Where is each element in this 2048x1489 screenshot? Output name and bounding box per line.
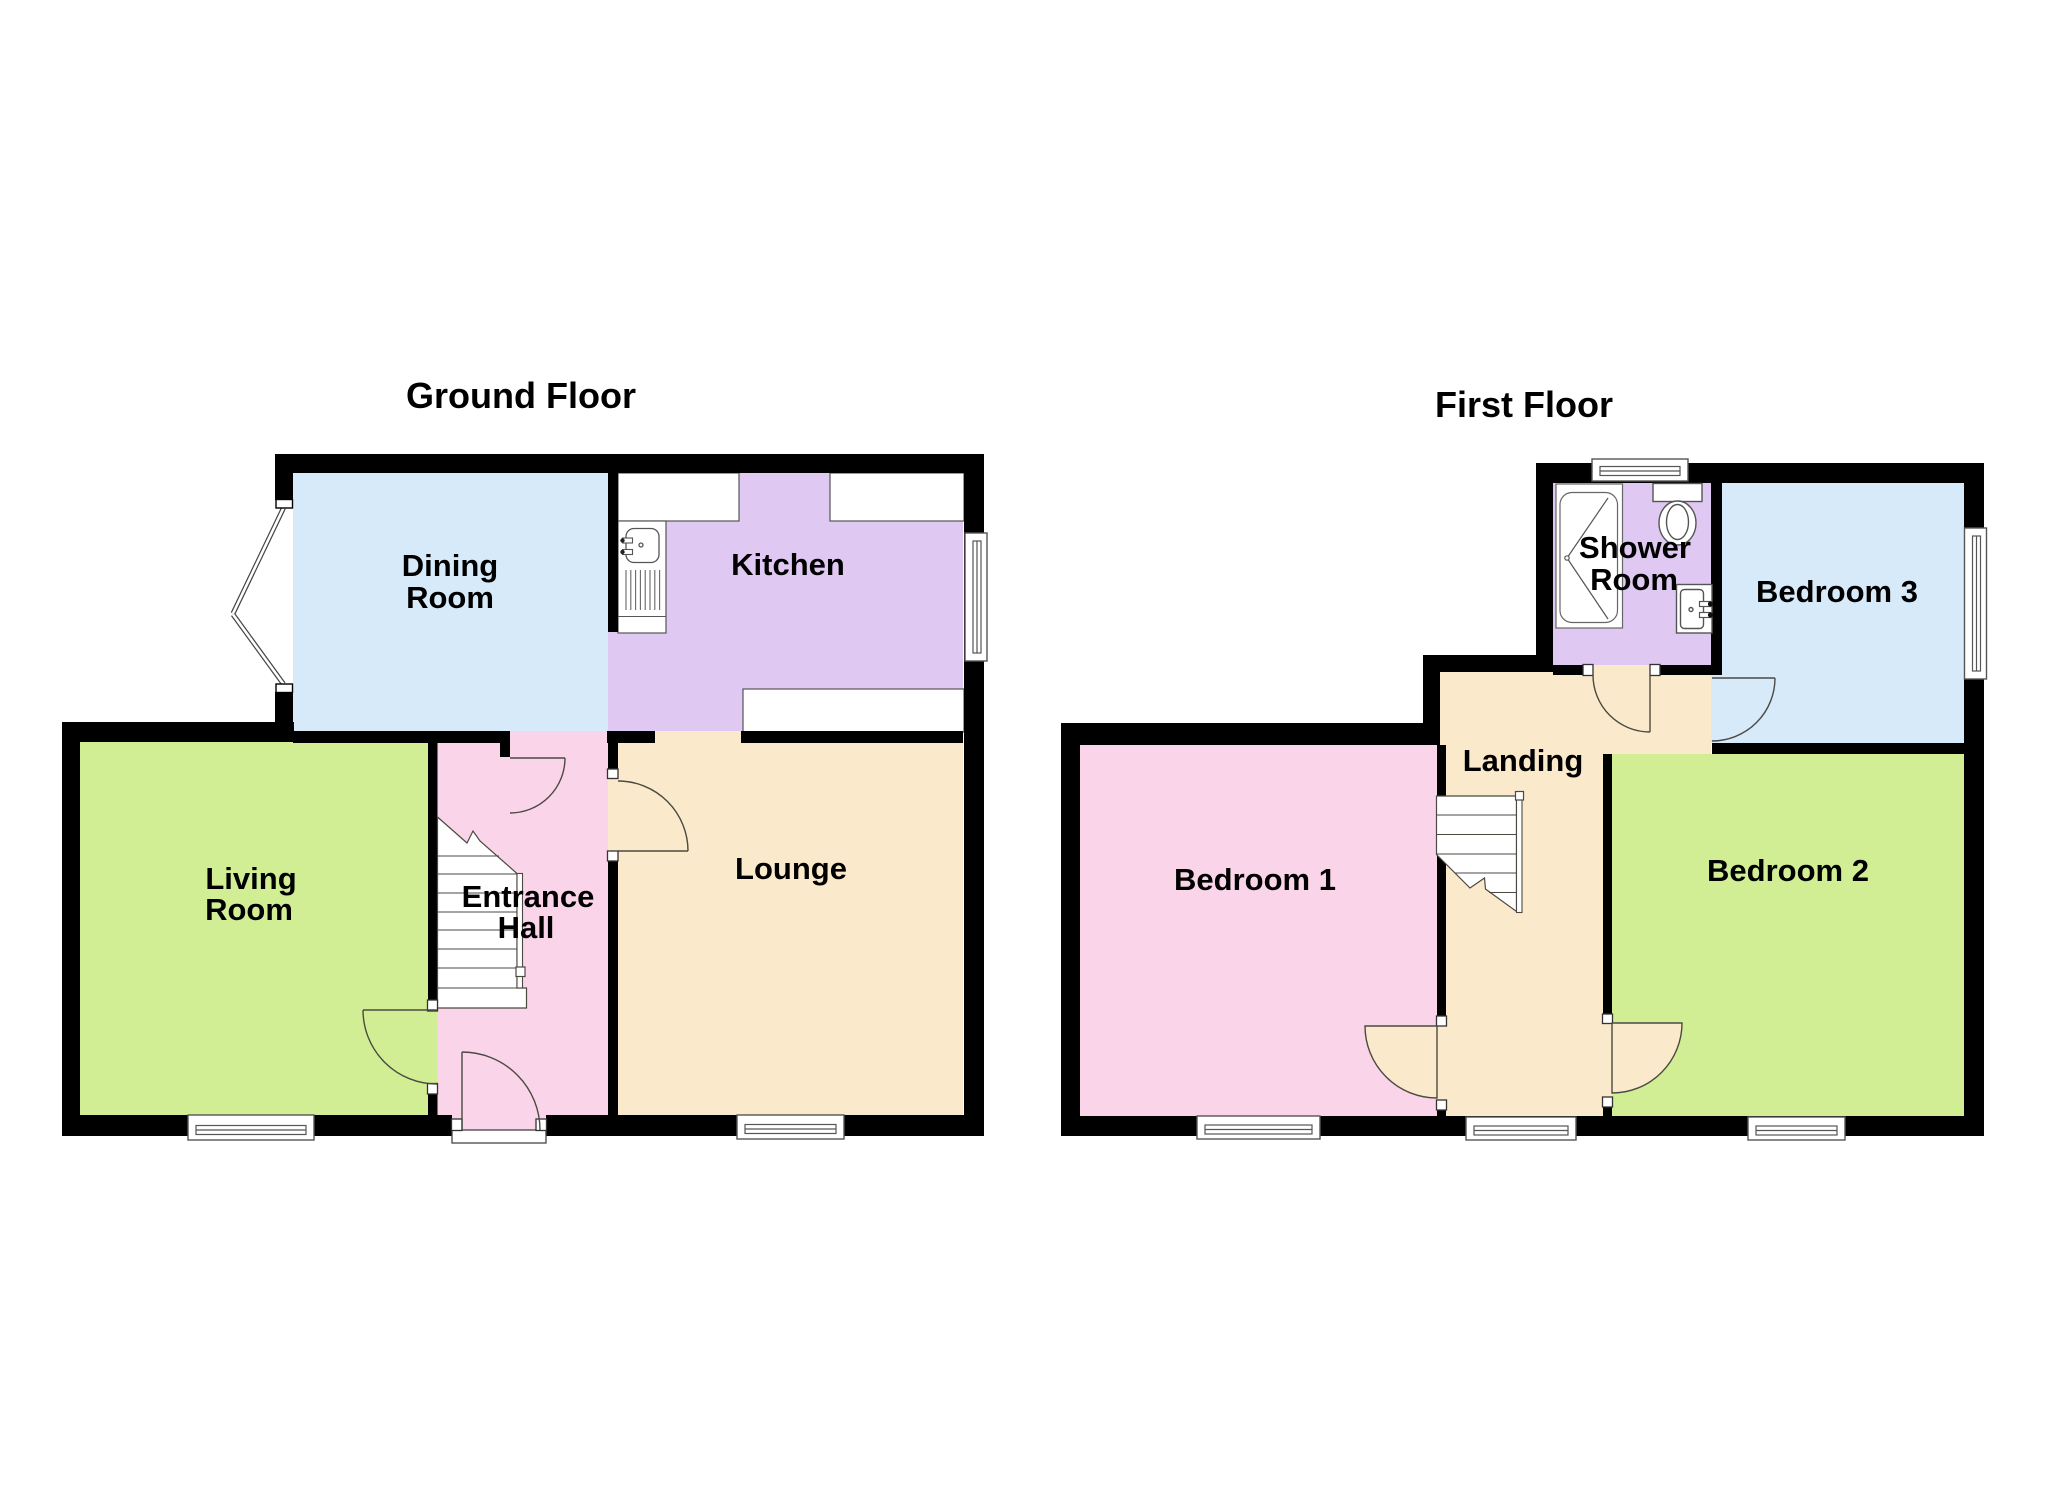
svg-text:Landing: Landing	[1463, 743, 1584, 778]
svg-text:Bedroom 3: Bedroom 3	[1756, 574, 1918, 609]
svg-text:Room: Room	[205, 892, 293, 927]
svg-text:Bedroom 2: Bedroom 2	[1707, 853, 1869, 888]
svg-text:Bedroom 1: Bedroom 1	[1174, 862, 1336, 897]
svg-text:Hall: Hall	[498, 910, 555, 945]
svg-text:Room: Room	[1590, 562, 1678, 597]
svg-text:Kitchen: Kitchen	[731, 547, 845, 582]
svg-text:Entrance: Entrance	[462, 879, 595, 914]
svg-text:First Floor: First Floor	[1435, 384, 1613, 425]
svg-text:Shower: Shower	[1579, 530, 1691, 565]
svg-text:Ground Floor: Ground Floor	[406, 375, 636, 416]
svg-text:Room: Room	[406, 580, 494, 615]
svg-text:Lounge: Lounge	[735, 851, 847, 886]
svg-text:Dining: Dining	[402, 548, 498, 583]
svg-text:Living: Living	[205, 861, 296, 896]
